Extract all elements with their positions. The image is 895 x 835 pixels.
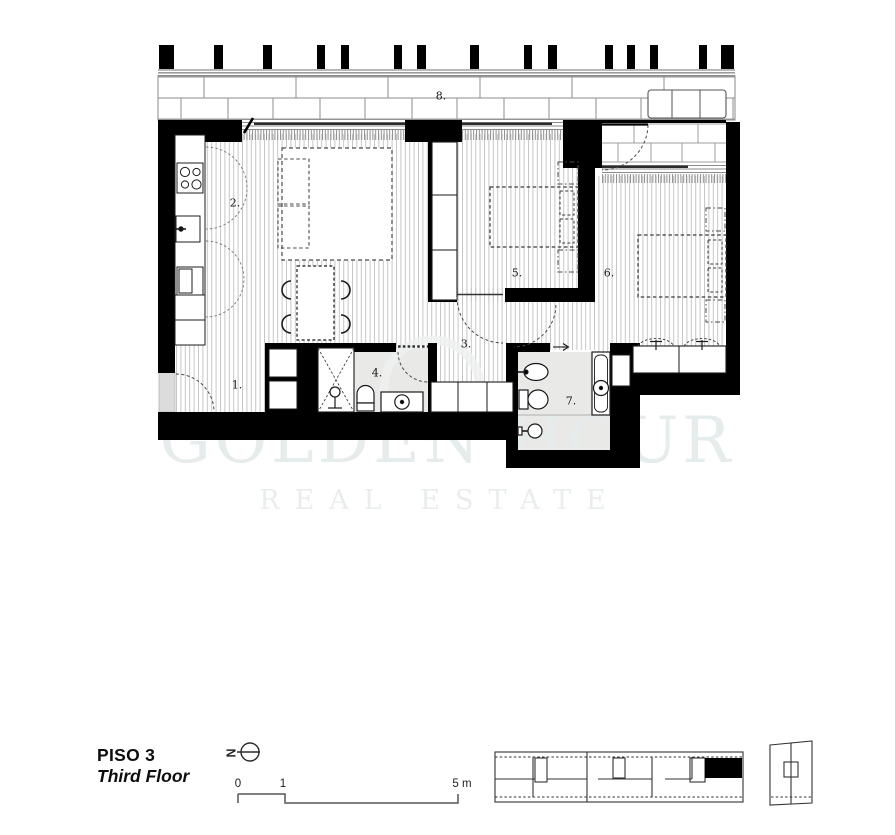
floor-plan-drawing: GOLDEN HOUR REAL ESTATE xyxy=(0,0,895,835)
room-label-bathroom-1: 4. xyxy=(372,367,383,380)
toilet-1 xyxy=(357,386,374,412)
corridor-floor xyxy=(513,300,595,350)
bedroom-1-window xyxy=(462,120,563,140)
highlighted-unit-marker xyxy=(705,758,742,778)
room-label-hallway: 3. xyxy=(461,338,472,351)
scale-bar xyxy=(238,794,458,803)
terrace-railing xyxy=(158,45,735,76)
bathtub xyxy=(592,352,610,415)
room-label-bedroom-1: 5. xyxy=(512,267,523,280)
scale-tick-5m: 5 m xyxy=(452,778,471,790)
room-label-kitchen-living-room: 2. xyxy=(230,197,241,210)
bedroom-1-wardrobe xyxy=(432,142,457,300)
terrace-railing-posts xyxy=(159,45,734,69)
north-letter: N xyxy=(225,748,239,757)
balcony-niche-floor xyxy=(602,123,726,164)
key-plan-diagram xyxy=(770,741,812,805)
washbasin-1 xyxy=(381,392,423,412)
living-room-window xyxy=(242,118,405,140)
floor-title-block: PISO 3 Third Floor xyxy=(97,745,189,787)
room-label-terrace: 8. xyxy=(436,90,447,103)
room-label-bedroom-2: 6. xyxy=(604,267,615,280)
building-strip-diagram xyxy=(495,752,743,802)
scale-tick-1: 1 xyxy=(280,778,286,790)
watermark-line2: REAL ESTATE xyxy=(259,485,621,516)
dining-table xyxy=(297,266,334,340)
terrace-edge-lines xyxy=(158,70,735,76)
bathroom-2-cabinet xyxy=(612,355,630,386)
terrace-sunbed xyxy=(648,90,726,118)
entrance-floor xyxy=(175,345,205,412)
room-label-entrance-hall: 1. xyxy=(232,379,243,392)
north-arrow xyxy=(237,743,260,761)
bedroom-2-window xyxy=(602,163,726,183)
toilet-2 xyxy=(519,390,548,409)
scale-tick-0: 0 xyxy=(235,778,241,790)
room-label-bathroom-2: 7. xyxy=(566,395,577,408)
floor-title-en: Third Floor xyxy=(97,766,189,787)
floor-plan-page: GOLDEN HOUR REAL ESTATE xyxy=(0,0,895,835)
floor-title-pt: PISO 3 xyxy=(97,745,189,766)
hallway-closet xyxy=(431,382,513,412)
